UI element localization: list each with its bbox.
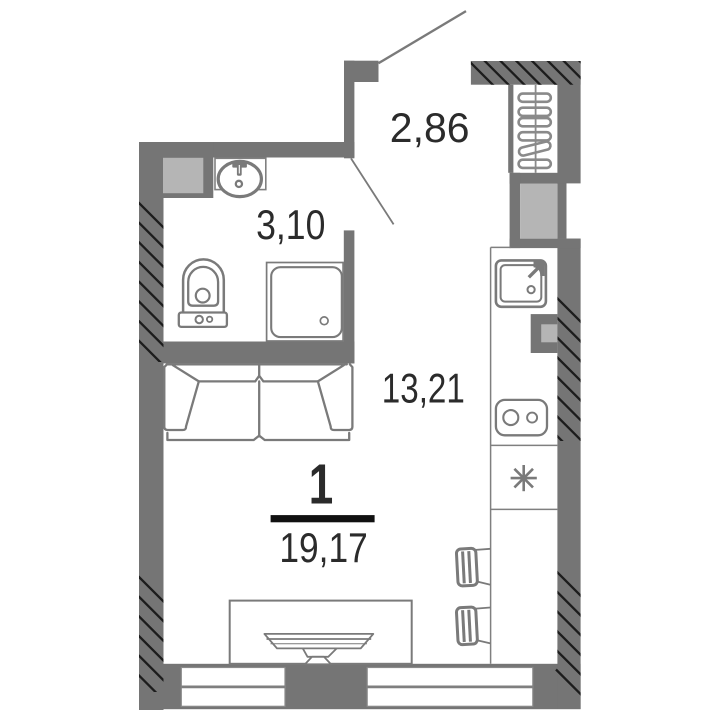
svg-text:1: 1 [309,453,334,516]
svg-text:3,10: 3,10 [256,202,325,248]
svg-text:19,17: 19,17 [279,524,367,571]
svg-text:13,21: 13,21 [382,365,465,411]
svg-text:2,86: 2,86 [390,105,470,151]
